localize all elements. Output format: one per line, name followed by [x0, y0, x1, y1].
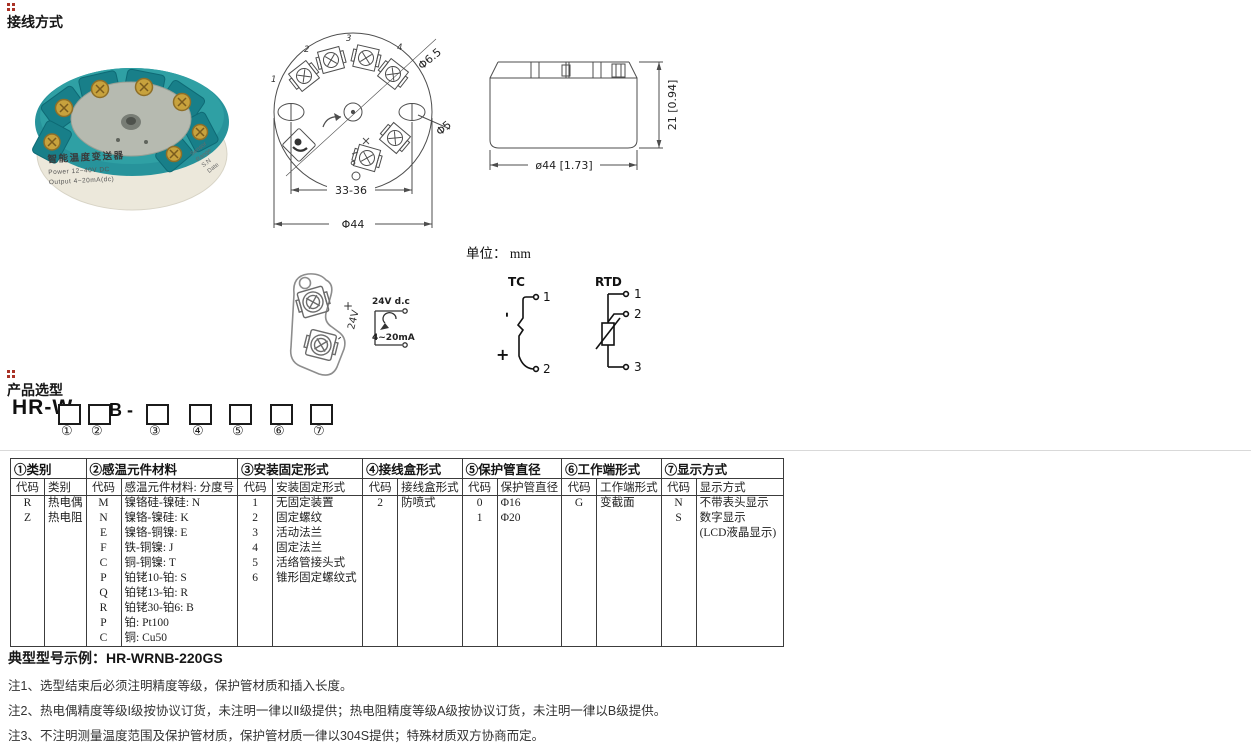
table-cell-code — [661, 631, 696, 647]
model-code-box-1 — [58, 404, 81, 425]
table-cell-desc — [597, 631, 662, 647]
table-row: R铂铑30-铂6: B — [11, 601, 784, 616]
table-cell-desc — [497, 631, 562, 647]
table-row: R热电偶M镍铬硅-镍硅: N1无固定装置2防喷式0Φ16G变截面N不带表头显示 — [11, 496, 784, 512]
table-cell-code — [363, 586, 398, 601]
table-cell-desc — [273, 631, 363, 647]
table-cell-code: S — [661, 511, 696, 526]
table-cell-code — [661, 571, 696, 586]
table-cell-desc — [398, 631, 463, 647]
table-cell-code — [562, 541, 597, 556]
table-cell-code — [562, 586, 597, 601]
table-row: P铂: Pt100 — [11, 616, 784, 631]
table-cell-desc: 铂铑13-铂: R — [121, 586, 238, 601]
table-cell-desc — [398, 601, 463, 616]
table-subheader-code: 代码 — [462, 479, 497, 496]
table-cell-code — [661, 556, 696, 571]
table-row: Q铂铑13-铂: R — [11, 586, 784, 601]
table-cell-code — [238, 586, 273, 601]
table-cell-desc — [696, 631, 783, 647]
table-row: C铜-铜镍: T5活络管接头式 — [11, 556, 784, 571]
table-group-header: ③安装固定形式 — [238, 459, 363, 479]
table-cell-desc: 热电阻 — [45, 511, 87, 526]
screw-terminal — [351, 144, 384, 173]
table-cell-desc: 防喷式 — [398, 496, 463, 512]
table-cell-desc: 无固定装置 — [273, 496, 363, 512]
table-cell-desc — [497, 586, 562, 601]
note-line-3: 注3、不注明测量温度范围及保护管材质，保护管材质一律以304S提供；特殊材质双方… — [8, 725, 544, 743]
selection-table: ①类别②感温元件材料③安装固定形式④接线盒形式⑤保护管直径⑥工作端形式⑦显示方式… — [10, 458, 784, 647]
section-marker-icon — [7, 3, 15, 11]
table-subheader-code: 代码 — [363, 479, 398, 496]
note-line-2: 注2、热电偶精度等级I级按协议订货，未注明一律以Ⅱ级提供；热电阻精度等级A级按协… — [8, 700, 666, 719]
table-cell-code — [562, 571, 597, 586]
table-cell-code — [661, 601, 696, 616]
table-cell-code — [363, 601, 398, 616]
table-cell-desc: 铂: Pt100 — [121, 616, 238, 631]
loop-supply-label: 24V d.c — [372, 297, 410, 307]
table-cell-desc — [45, 556, 87, 571]
table-cell-desc: 变截面 — [597, 496, 662, 512]
table-cell-desc: 活络管接头式 — [273, 556, 363, 571]
table-row: P铂铑10-铂: S6锥形固定螺纹式 — [11, 571, 784, 586]
table-cell-code: 1 — [462, 511, 497, 526]
position-number: ③ — [149, 423, 161, 439]
table-cell-code: 5 — [238, 556, 273, 571]
top-view-drawing: 33-36 Φ44 Φ6.5 Φ5 1 2 3 4 — [266, 30, 488, 248]
dim-height: 21 [0.94] — [666, 80, 679, 131]
table-cell-code — [363, 631, 398, 647]
table-cell-desc — [597, 586, 662, 601]
table-row: E镍铬-铜镍: E3活动法兰(LCD液晶显示) — [11, 526, 784, 541]
rtd-terminal-2: 2 — [634, 307, 642, 321]
position-number: ⑥ — [273, 423, 285, 439]
table-cell-code: E — [86, 526, 121, 541]
side-view-drawing: 21 [0.94] ø44 [1.73] — [476, 48, 684, 180]
tc-terminal-2: 2 — [543, 362, 551, 376]
table-cell-desc — [696, 541, 783, 556]
table-cell-desc — [45, 601, 87, 616]
rtd-terminal-3: 3 — [634, 360, 642, 374]
model-fixed-code: B - — [109, 400, 133, 421]
table-subheader-desc: 显示方式 — [696, 479, 783, 496]
table-cell-code: 3 — [238, 526, 273, 541]
table-cell-code — [363, 616, 398, 631]
table-cell-code: 1 — [238, 496, 273, 512]
table-subheader-code: 代码 — [238, 479, 273, 496]
table-cell-code — [363, 526, 398, 541]
table-cell-desc — [597, 601, 662, 616]
table-cell-desc — [398, 556, 463, 571]
table-cell-code: R — [11, 496, 45, 512]
table-cell-desc — [497, 541, 562, 556]
table-cell-code: 2 — [238, 511, 273, 526]
rtd-title: RTD — [595, 275, 622, 289]
table-cell-code: R — [86, 601, 121, 616]
table-cell-desc: 镍铬硅-镍硅: N — [121, 496, 238, 512]
table-cell-desc — [398, 586, 463, 601]
screw-terminal — [315, 46, 348, 74]
table-cell-desc — [398, 541, 463, 556]
table-cell-desc — [45, 616, 87, 631]
table-cell-desc — [696, 556, 783, 571]
table-cell-desc: 铂铑10-铂: S — [121, 571, 238, 586]
tc-terminal-1: 1 — [543, 290, 551, 304]
loop-diagram: 24V d.c 4~20mA — [368, 292, 440, 356]
table-cell-code: C — [86, 556, 121, 571]
table-cell-code — [11, 541, 45, 556]
table-subheader-desc: 工作端形式 — [597, 479, 662, 496]
table-cell-desc — [45, 586, 87, 601]
table-group-header: ④接线盒形式 — [363, 459, 463, 479]
table-cell-desc: 铜: Cu50 — [121, 631, 238, 647]
table-cell-code — [462, 541, 497, 556]
table-cell-desc — [597, 541, 662, 556]
table-subheader-code: 代码 — [661, 479, 696, 496]
table-cell-desc — [45, 631, 87, 647]
wiring-section-title: 接线方式 — [7, 12, 63, 32]
unit-label: 单位： mm — [466, 242, 531, 262]
table-subheader-code: 代码 — [86, 479, 121, 496]
table-cell-code — [562, 616, 597, 631]
table-subheader-desc: 类别 — [45, 479, 87, 496]
table-cell-code — [363, 541, 398, 556]
table-cell-code — [11, 571, 45, 586]
table-subheader-code: 代码 — [562, 479, 597, 496]
table-cell-code — [462, 616, 497, 631]
table-cell-code: N — [661, 496, 696, 512]
table-cell-code: P — [86, 571, 121, 586]
dim-phi44: Φ44 — [342, 218, 365, 231]
table-cell-desc: 不带表头显示 — [696, 496, 783, 512]
table-cell-code: 6 — [238, 571, 273, 586]
table-cell-desc: 活动法兰 — [273, 526, 363, 541]
table-cell-code — [562, 601, 597, 616]
screw-terminal — [286, 59, 322, 94]
table-cell-desc — [597, 571, 662, 586]
table-cell-code: Q — [86, 586, 121, 601]
position-number: ① — [61, 423, 73, 439]
model-code-box-6 — [270, 404, 293, 425]
table-cell-code — [661, 586, 696, 601]
table-cell-desc — [273, 616, 363, 631]
model-code-box-7 — [310, 404, 333, 425]
table-cell-desc — [497, 601, 562, 616]
table-cell-desc — [497, 526, 562, 541]
screw-terminal — [375, 57, 411, 92]
tc-title: TC — [508, 275, 525, 289]
table-cell-desc — [597, 616, 662, 631]
table-group-header: ①类别 — [11, 459, 87, 479]
table-row: F铁-铜镍: J4固定法兰 — [11, 541, 784, 556]
table-cell-code — [661, 526, 696, 541]
table-cell-code: C — [86, 631, 121, 647]
sensor-wiring-diagram: TC RTD 1 2 1 2 3 - + — [495, 272, 669, 390]
position-number: ⑦ — [313, 423, 325, 439]
table-cell-desc: 铜-铜镍: T — [121, 556, 238, 571]
table-cell-desc: Φ20 — [497, 511, 562, 526]
position-number: ⑤ — [232, 423, 244, 439]
table-cell-code — [661, 541, 696, 556]
table-cell-code — [11, 616, 45, 631]
table-cell-desc — [597, 526, 662, 541]
table-cell-code — [238, 616, 273, 631]
table-cell-code — [238, 601, 273, 616]
table-cell-code: F — [86, 541, 121, 556]
table-cell-desc: 固定法兰 — [273, 541, 363, 556]
table-cell-code — [11, 586, 45, 601]
table-row: Z热电阻N镍铬-镍硅: K2固定螺纹1Φ20S数字显示 — [11, 511, 784, 526]
table-cell-code: Z — [11, 511, 45, 526]
product-photo: 智能温度变送器 Power 12~40V DC Output 4~20mA(dc… — [14, 56, 252, 214]
loop-output-label: 4~20mA — [372, 333, 415, 343]
table-cell-code: 2 — [363, 496, 398, 512]
table-group-header: ②感温元件材料 — [86, 459, 238, 479]
table-cell-desc: 铂铑30-铂6: B — [121, 601, 238, 616]
table-cell-desc: 铁-铜镍: J — [121, 541, 238, 556]
table-cell-desc — [45, 571, 87, 586]
table-cell-code — [363, 571, 398, 586]
table-subheader-desc: 安装固定形式 — [273, 479, 363, 496]
table-cell-code — [238, 631, 273, 647]
dim-33-36: 33-36 — [335, 184, 367, 197]
table-cell-desc — [597, 556, 662, 571]
table-cell-desc — [398, 616, 463, 631]
svg-text:3: 3 — [346, 34, 351, 44]
svg-text:1: 1 — [271, 75, 276, 85]
table-cell-desc: 热电偶 — [45, 496, 87, 512]
table-cell-desc — [45, 526, 87, 541]
table-cell-code — [11, 601, 45, 616]
svg-text:2: 2 — [304, 45, 309, 55]
position-number: ② — [91, 423, 103, 439]
table-cell-desc — [597, 511, 662, 526]
table-cell-desc: 数字显示 — [696, 511, 783, 526]
table-group-header: ⑦显示方式 — [661, 459, 783, 479]
table-cell-desc — [398, 571, 463, 586]
table-cell-desc — [696, 571, 783, 586]
table-cell-desc — [696, 601, 783, 616]
table-cell-desc — [45, 541, 87, 556]
section-marker-icon — [7, 370, 15, 378]
table-cell-desc — [398, 526, 463, 541]
table-cell-code — [462, 601, 497, 616]
table-row: C铜: Cu50 — [11, 631, 784, 647]
table-cell-code — [562, 526, 597, 541]
table-group-header: ⑥工作端形式 — [562, 459, 662, 479]
table-cell-desc — [497, 571, 562, 586]
table-cell-code: P — [86, 616, 121, 631]
table-cell-desc: (LCD液晶显示) — [696, 526, 783, 541]
position-number: ④ — [192, 423, 204, 439]
note-line-1: 注1、选型结束后必须注明精度等级，保护管材质和插入长度。 — [8, 675, 352, 694]
table-cell-desc — [696, 586, 783, 601]
table-cell-desc — [273, 601, 363, 616]
table-cell-code — [462, 571, 497, 586]
table-cell-desc — [273, 586, 363, 601]
table-cell-code — [562, 556, 597, 571]
table-cell-desc: 锥形固定螺纹式 — [273, 571, 363, 586]
table-cell-code — [462, 631, 497, 647]
table-cell-desc — [497, 556, 562, 571]
table-cell-desc: Φ16 — [497, 496, 562, 512]
table-cell-code — [363, 556, 398, 571]
typical-model-example: 典型型号示例：HR-WRNB-220GS — [8, 648, 223, 668]
table-cell-code — [11, 526, 45, 541]
screw-terminal — [377, 121, 413, 156]
table-cell-code — [661, 616, 696, 631]
rtd-terminal-1: 1 — [634, 287, 642, 301]
svg-text:4: 4 — [397, 43, 402, 53]
table-subheader-desc: 接线盒形式 — [398, 479, 463, 496]
table-cell-code: G — [562, 496, 597, 512]
table-cell-code — [462, 526, 497, 541]
table-cell-code — [562, 631, 597, 647]
dim-width: ø44 [1.73] — [535, 159, 592, 172]
table-cell-desc — [696, 616, 783, 631]
table-cell-desc: 镍铬-铜镍: E — [121, 526, 238, 541]
table-subheader-code: 代码 — [11, 479, 45, 496]
tc-plus: + — [496, 345, 509, 364]
section-divider — [0, 450, 1251, 451]
table-cell-code — [11, 631, 45, 647]
model-code-box-5 — [229, 404, 252, 425]
model-code-box-2 — [88, 404, 111, 425]
table-cell-code — [462, 586, 497, 601]
table-subheader-desc: 保护管直径 — [497, 479, 562, 496]
dim-phi6-5: Φ6.5 — [416, 46, 444, 73]
table-cell-code: N — [86, 511, 121, 526]
table-cell-code — [363, 511, 398, 526]
tc-minus: - — [499, 312, 514, 317]
dim-phi5: Φ5 — [434, 118, 454, 138]
table-cell-code: M — [86, 496, 121, 512]
screw-terminal — [350, 44, 382, 72]
table-cell-desc: 固定螺纹 — [273, 511, 363, 526]
table-cell-desc: 镍铬-镍硅: K — [121, 511, 238, 526]
table-cell-desc — [398, 511, 463, 526]
table-cell-code: 0 — [462, 496, 497, 512]
table-subheader-desc: 感温元件材料: 分度号 — [121, 479, 238, 496]
table-cell-code — [562, 511, 597, 526]
table-cell-code — [462, 556, 497, 571]
model-code-box-3 — [146, 404, 169, 425]
datasheet-page: 接线方式 智能温度变送器 Power — [0, 0, 1251, 743]
model-code-box-4 — [189, 404, 212, 425]
table-group-header: ⑤保护管直径 — [462, 459, 562, 479]
table-cell-code — [11, 556, 45, 571]
table-cell-code: 4 — [238, 541, 273, 556]
table-cell-desc — [497, 616, 562, 631]
